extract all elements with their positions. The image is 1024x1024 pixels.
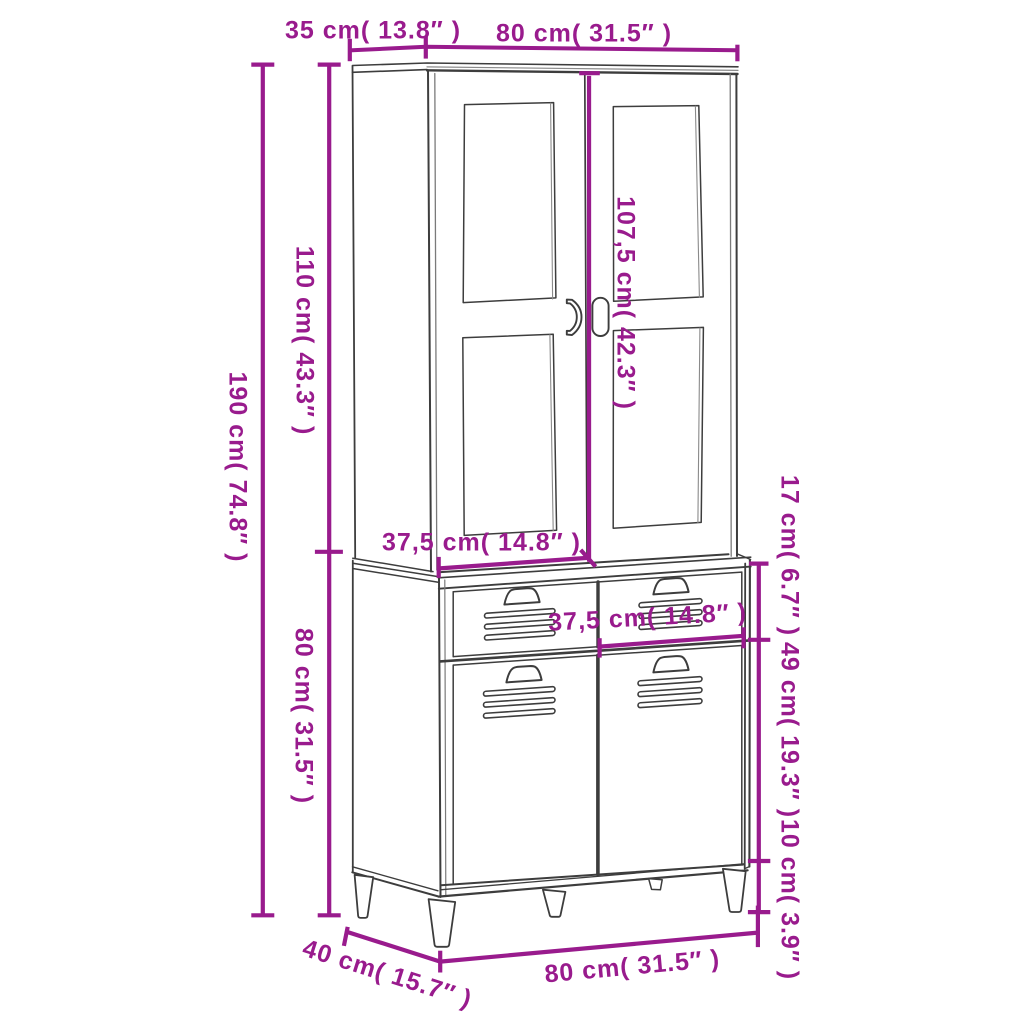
svg-text:110 cm( 43.3″ ): 110 cm( 43.3″ ) [291, 246, 319, 436]
svg-text:107,5 cm( 42.3″ ): 107,5 cm( 42.3″ ) [612, 196, 640, 410]
svg-text:10 cm( 3.9″ ): 10 cm( 3.9″ ) [776, 819, 804, 980]
svg-text:17 cm( 6.7″ ): 17 cm( 6.7″ ) [776, 475, 804, 636]
svg-text:80 cm( 31.5″ ): 80 cm( 31.5″ ) [496, 20, 672, 48]
svg-text:37,5 cm( 14.8″ ): 37,5 cm( 14.8″ ) [382, 529, 581, 557]
svg-text:35 cm( 13.8″ ): 35 cm( 13.8″ ) [285, 17, 461, 45]
svg-text:49 cm( 19.3″ ): 49 cm( 19.3″ ) [776, 642, 804, 818]
svg-text:190 cm( 74.8″ ): 190 cm( 74.8″ ) [224, 372, 252, 563]
svg-text:80 cm( 31.5″ ): 80 cm( 31.5″ ) [290, 628, 318, 804]
